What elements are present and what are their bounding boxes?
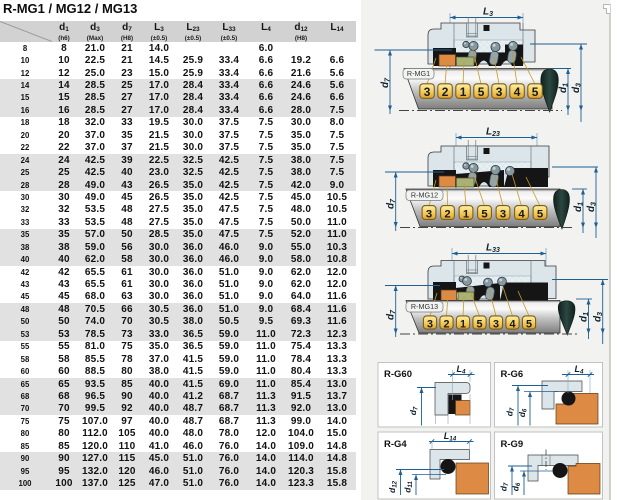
svg-text:d7: d7	[386, 198, 398, 209]
svg-text:d3: d3	[593, 312, 605, 322]
svg-text:5: 5	[478, 85, 485, 99]
svg-text:R-G9: R-G9	[501, 439, 524, 450]
svg-text:2: 2	[442, 85, 449, 99]
svg-text:d7: d7	[380, 77, 392, 88]
svg-text:d1: d1	[579, 312, 591, 322]
svg-text:1: 1	[460, 318, 466, 330]
svg-text:4: 4	[509, 318, 515, 330]
svg-text:R-G4: R-G4	[384, 439, 407, 450]
svg-text:5: 5	[481, 209, 487, 221]
svg-text:d7: d7	[386, 309, 398, 320]
svg-text:3: 3	[427, 318, 433, 330]
svg-text:5: 5	[537, 209, 543, 221]
svg-text:R-MG12: R-MG12	[411, 191, 438, 200]
svg-text:4: 4	[514, 85, 521, 99]
svg-text:3: 3	[426, 209, 432, 221]
svg-text:L33: L33	[486, 243, 500, 255]
svg-text:3: 3	[496, 85, 503, 99]
svg-text:R-MG1: R-MG1	[407, 69, 430, 78]
svg-text:4: 4	[518, 209, 525, 221]
svg-text:R-G6: R-G6	[501, 369, 524, 380]
svg-text:R-G60: R-G60	[384, 369, 412, 380]
svg-text:5: 5	[476, 318, 482, 330]
svg-text:L3: L3	[483, 7, 493, 19]
svg-text:L23: L23	[486, 127, 500, 139]
svg-text:2: 2	[443, 318, 449, 330]
svg-text:3: 3	[493, 318, 499, 330]
svg-text:R-MG13: R-MG13	[411, 302, 438, 311]
svg-text:d3: d3	[586, 202, 598, 212]
svg-text:2: 2	[444, 209, 450, 221]
svg-text:1: 1	[463, 209, 469, 221]
svg-text:d1: d1	[558, 83, 570, 93]
svg-text:3: 3	[500, 209, 506, 221]
svg-text:1: 1	[460, 85, 467, 99]
svg-text:d1: d1	[573, 202, 585, 212]
svg-text:5: 5	[532, 85, 539, 99]
svg-text:d3: d3	[571, 83, 583, 93]
svg-text:3: 3	[424, 85, 431, 99]
svg-text:5: 5	[526, 318, 532, 330]
